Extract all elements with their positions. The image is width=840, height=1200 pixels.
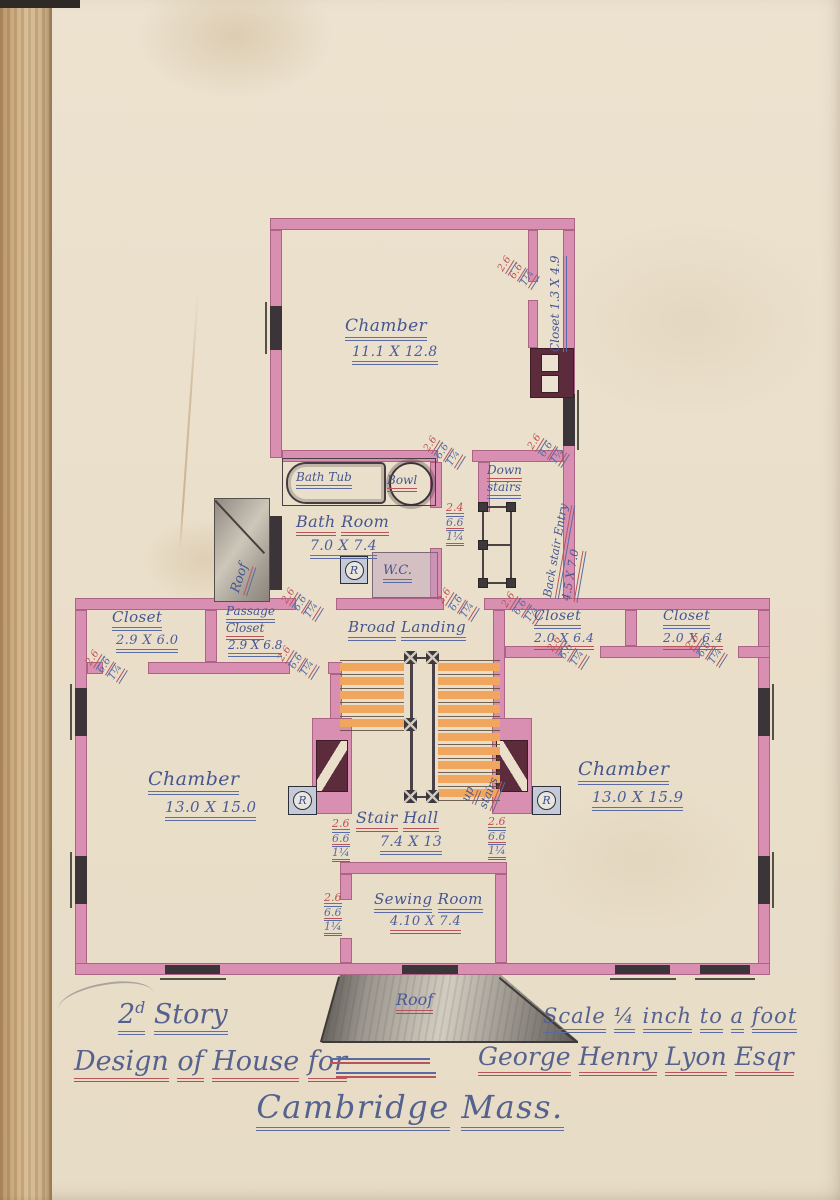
stair-rail (432, 660, 435, 800)
heat-register: R (340, 556, 368, 584)
bath-tub-label: Bath Tub (296, 470, 352, 489)
filler-line (330, 1058, 430, 1060)
paper-stain (179, 290, 199, 550)
story-number: 2d (118, 999, 145, 1035)
room-label-broad-landing: Broad Landing (348, 618, 466, 641)
window-symbol (563, 394, 575, 446)
city-line: Cambridge Mass. (230, 1088, 590, 1131)
wall-segment (270, 218, 575, 230)
room-dims-chamber-left: 13.0 X 15.0 (165, 798, 256, 821)
room-label-closet-r2: Closet (663, 608, 710, 629)
back-stair-newel (479, 503, 487, 511)
back-stair-rail (510, 506, 512, 586)
wall-segment (205, 610, 217, 662)
room-label-closet-top-right: Closet 1.3 X 4.9 (548, 256, 567, 352)
stair-treads-left (340, 660, 404, 732)
room-dims-bath: 7.0 X 7.4 (310, 538, 377, 559)
window-symbol (75, 856, 87, 904)
wall-segment (625, 610, 637, 646)
window-symbol (270, 306, 282, 350)
wall-segment (738, 646, 770, 658)
newel-post (404, 718, 417, 731)
door-dimensions: 2.46.61¼ (446, 502, 464, 546)
window-symbol (75, 688, 87, 736)
window-sill (772, 684, 774, 740)
window-sill (577, 390, 579, 450)
room-label-closet-left: Closet (112, 608, 162, 631)
window-sill (70, 852, 72, 908)
scan-edge-shadow (0, 0, 80, 8)
wall-segment (758, 610, 770, 975)
room-label-chamber-top: Chamber (345, 316, 427, 341)
design-title-left: Design of House for (74, 1046, 347, 1082)
story-word: Story (154, 999, 228, 1035)
room-dims-passage: 2.9 X 6.8 (228, 638, 282, 657)
room-label-stair-hall: Stair Hall (356, 808, 439, 832)
window-sill (160, 978, 226, 980)
wall-segment (148, 662, 290, 674)
door-dimensions: 2.66.61¼ (437, 587, 480, 622)
door-dimensions: 2.66.61¼ (277, 645, 320, 680)
room-label-chamber-left: Chamber (148, 768, 239, 795)
door-dimensions: 2.66.61¼ (281, 587, 324, 622)
wall-segment (528, 300, 538, 348)
floor-plan-sheet: Bath Tub Bowl W.C. R R R Roof Roof Chamb… (0, 0, 840, 1200)
window-symbol (758, 856, 770, 904)
window-sill (265, 302, 267, 354)
window-symbol (615, 965, 670, 974)
door-dimensions: 2.66.61¼ (501, 591, 544, 626)
door-dimensions: 2.66.61¼ (332, 818, 350, 862)
window-sill (695, 978, 755, 980)
room-label-sewing: Sewing Room (374, 890, 483, 913)
bowl-label: Bowl (387, 473, 417, 492)
door-dimensions: 2.66.61¼ (488, 816, 506, 860)
chimney-flue-opening (542, 355, 558, 371)
chimney-flue-opening (542, 376, 558, 392)
wall-segment (75, 610, 87, 975)
scale-note: Scale ¼ inch to a foot (543, 1004, 797, 1033)
back-stair-newel (507, 503, 515, 511)
book-binding-edge (0, 0, 52, 1200)
down-stairs-label: stairs (487, 480, 521, 499)
heat-register: R (288, 786, 317, 815)
window-sill (610, 978, 676, 980)
wc-label: W.C. (383, 563, 412, 583)
newel-post (426, 651, 439, 664)
room-dims-sewing: 4.10 X 7.4 (390, 914, 461, 934)
porch-roof-label: Roof (396, 990, 433, 1014)
room-dims-closet-left: 2.9 X 6.0 (116, 633, 178, 653)
window-symbol (402, 965, 458, 974)
newel-post (404, 651, 417, 664)
window-sill (70, 684, 72, 740)
wall-segment (336, 598, 444, 610)
client-name: George Henry Lyon Esqr (478, 1042, 794, 1076)
register-letter: R (537, 791, 556, 810)
room-label-chamber-right: Chamber (578, 758, 669, 785)
heat-register: R (532, 786, 561, 815)
story-title: 2d Story (118, 998, 228, 1030)
window-symbol (758, 688, 770, 736)
filler-line (336, 1076, 436, 1078)
room-dims-stair-hall: 7.4 X 13 (380, 834, 442, 855)
register-letter: R (293, 791, 312, 810)
chimney-flue (316, 740, 348, 792)
back-stair-newel (479, 541, 487, 549)
newel-post (404, 790, 417, 803)
filler-line (330, 1062, 430, 1064)
window-symbol (700, 965, 750, 974)
wall-segment (495, 874, 507, 963)
back-stair-label: Back stair Entry 4.5 X 7.0 (540, 502, 594, 602)
room-label-bath: Bath Room (296, 512, 389, 536)
door-dimensions: 2.66.61¼ (85, 649, 128, 684)
back-stair-newel (507, 579, 515, 587)
register-letter: R (345, 561, 364, 580)
wall-segment (340, 862, 507, 874)
filler-line (336, 1072, 436, 1074)
window-symbol (165, 965, 220, 974)
room-dims-chamber-top: 11.1 X 12.8 (352, 344, 438, 365)
room-dims-chamber-right: 13.0 X 15.9 (592, 788, 683, 811)
wall-segment (340, 938, 352, 963)
window-sill (772, 852, 774, 908)
newel-post (426, 790, 439, 803)
door-dimensions: 2.66.61¼ (324, 892, 342, 936)
window-symbol (270, 516, 282, 590)
back-stair-newel (479, 579, 487, 587)
